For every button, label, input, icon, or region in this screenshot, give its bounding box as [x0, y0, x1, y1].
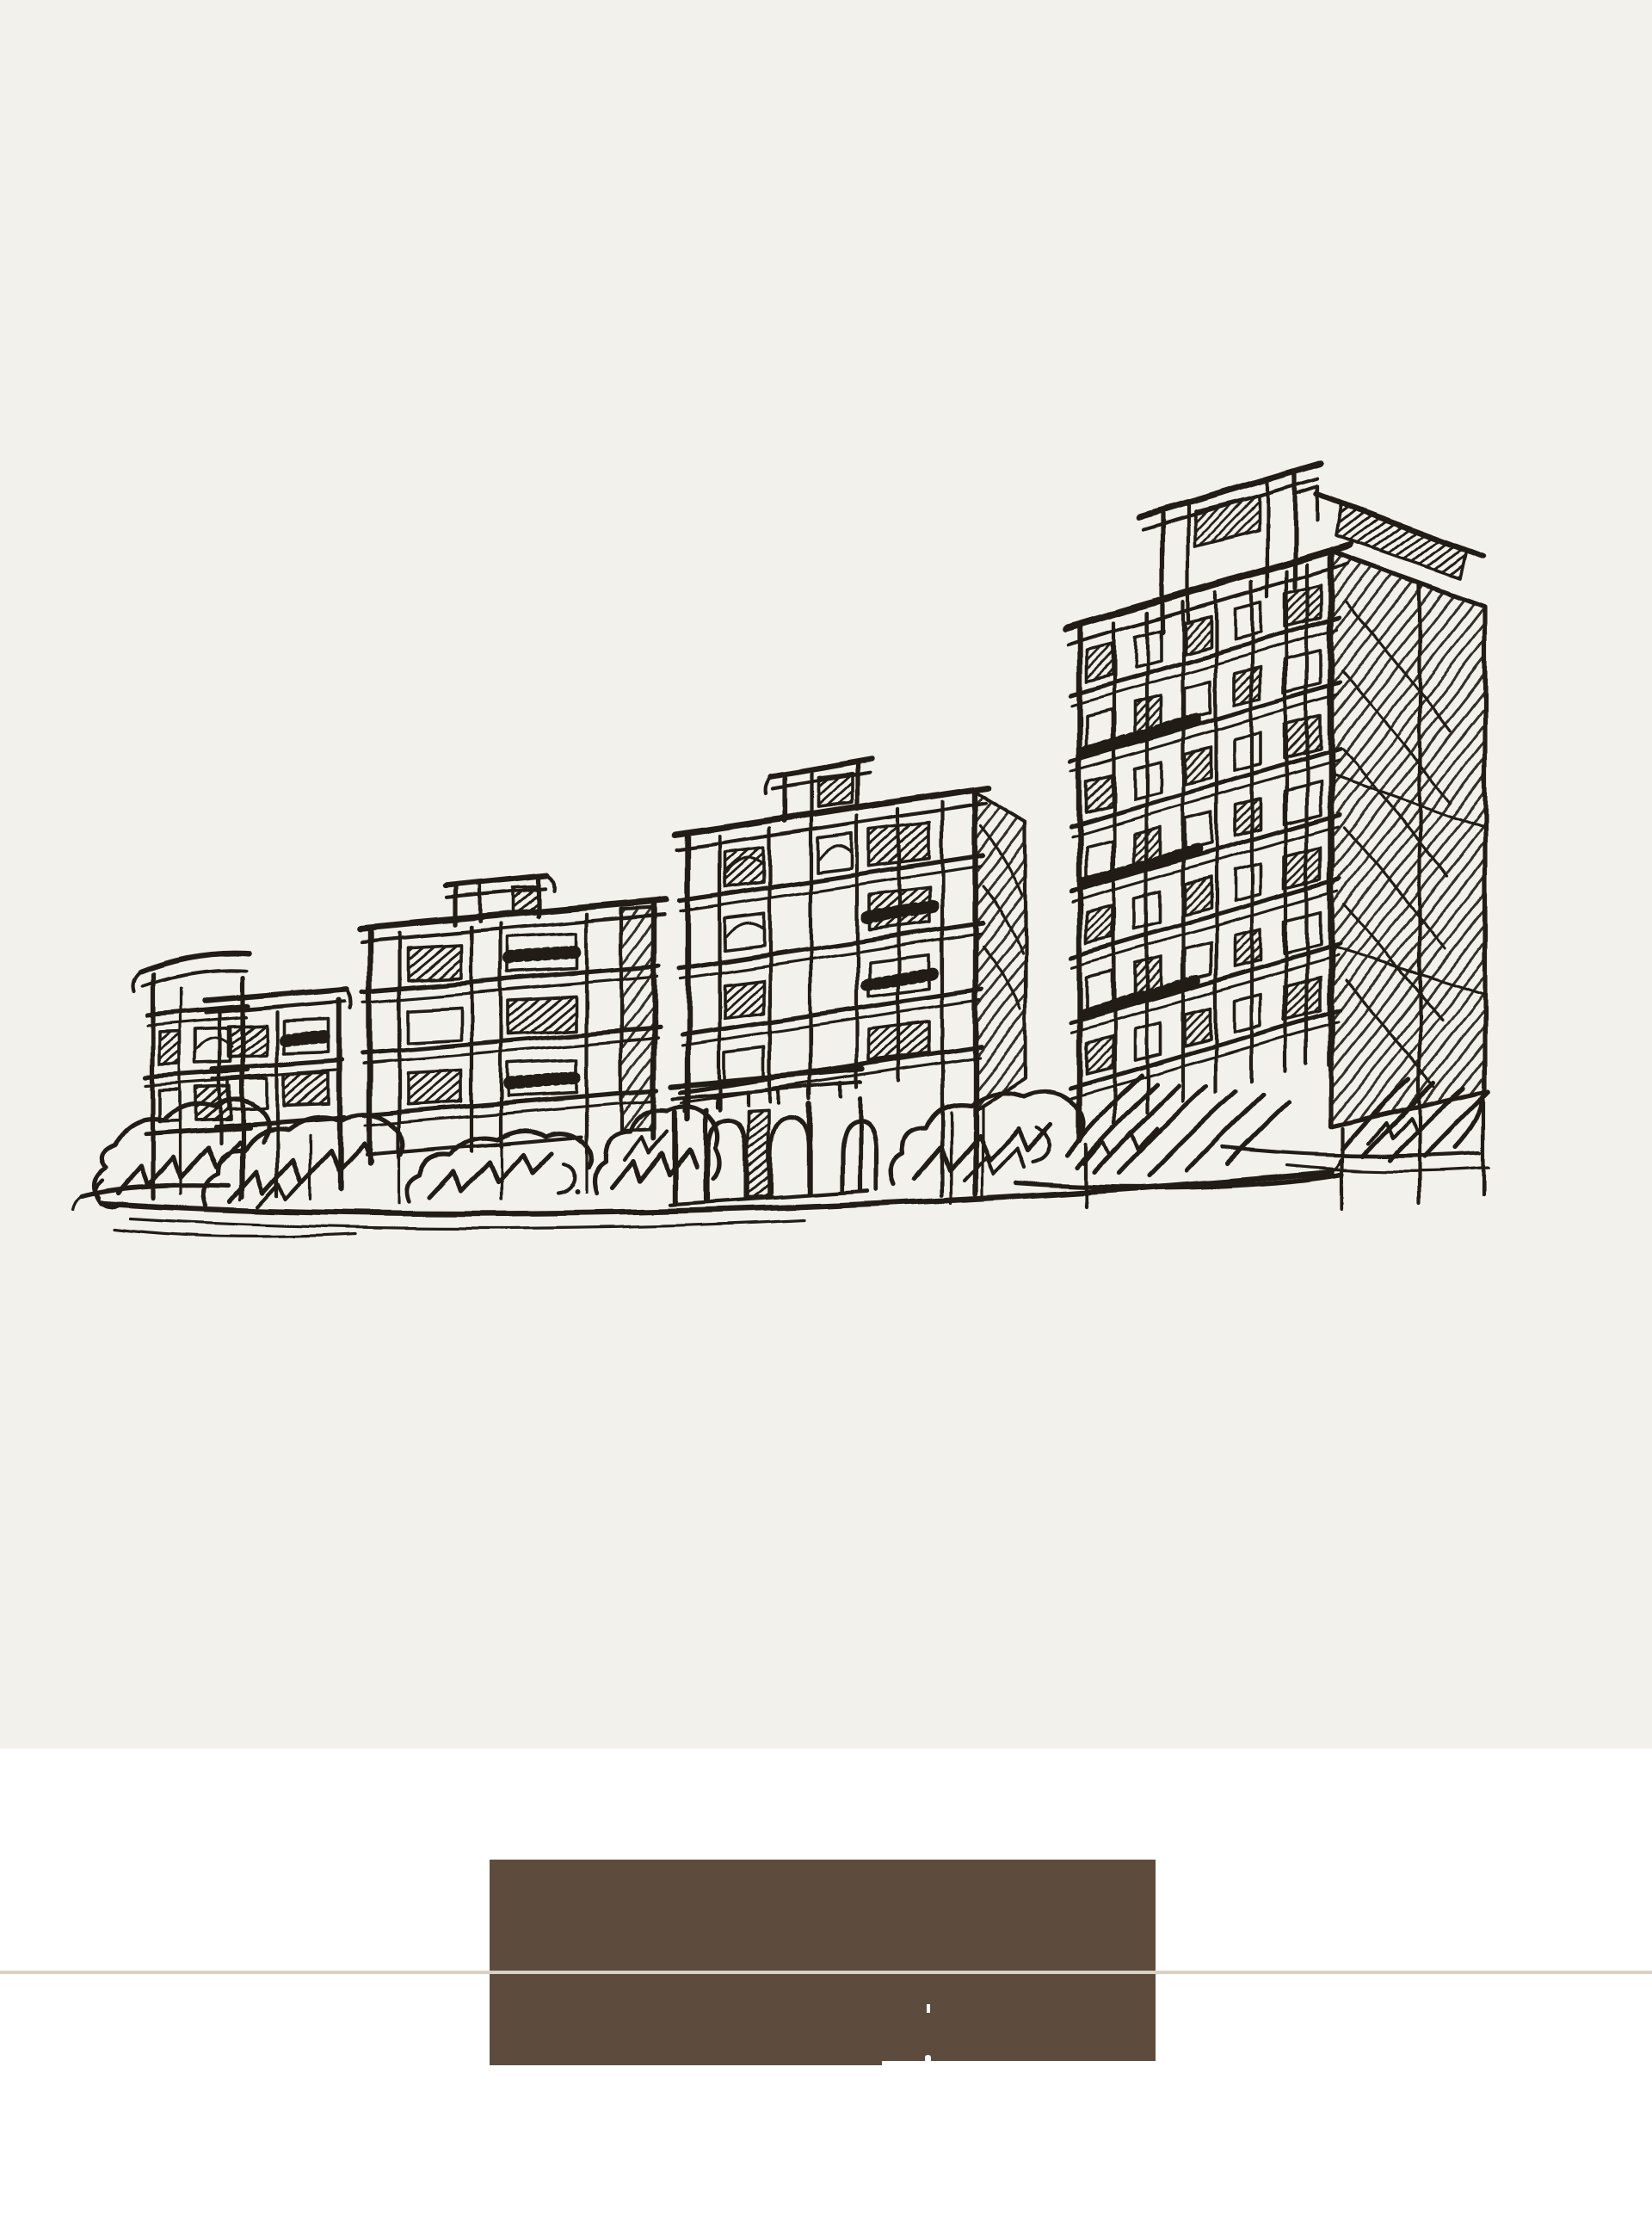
footer-bottom-notch	[882, 2061, 1156, 2065]
hero-section: Hand-drawn black ink sketch of four mid-…	[0, 0, 1652, 1749]
footer-brown-panel	[490, 1860, 1156, 2065]
page-root: Hand-drawn black ink sketch of four mid-…	[0, 0, 1652, 2215]
footer-white-fragment-dash	[927, 2004, 930, 2013]
footer-section	[0, 1749, 1652, 2215]
ink-layer	[74, 456, 1489, 1237]
ground-line	[74, 1148, 1489, 1237]
ink-dot	[575, 1188, 580, 1194]
buildings-sketch-illustration: Hand-drawn black ink sketch of four mid-…	[0, 0, 1652, 1749]
building-3	[676, 744, 988, 1230]
building-2	[360, 869, 666, 1207]
building-3-side-face	[975, 792, 1026, 1110]
building-4-side-face	[1316, 494, 1485, 1127]
horizontal-divider-line	[0, 1971, 1652, 1974]
building-4	[1066, 456, 1350, 1144]
